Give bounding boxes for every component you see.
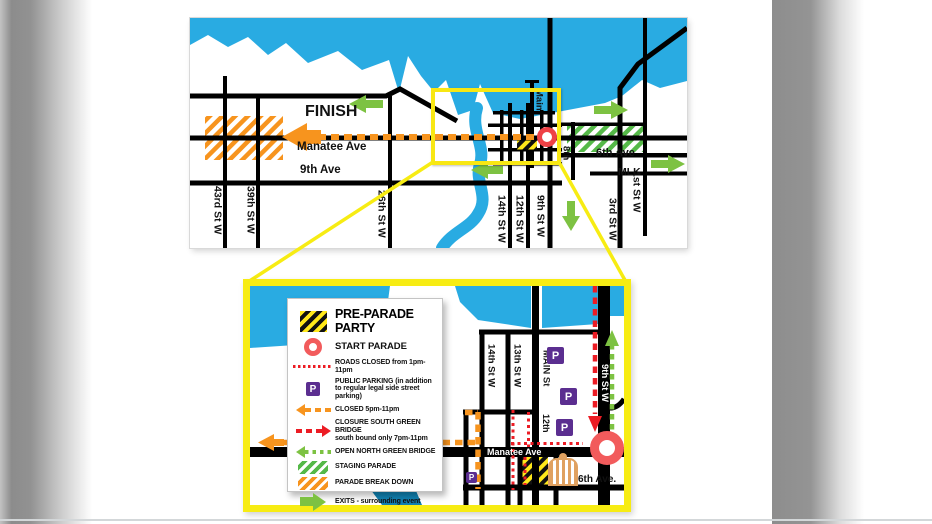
legend-title: PRE-PARADE PARTY: [335, 307, 439, 335]
legend-item-open-bridge: OPEN NORTH GREEN BRIDGE: [291, 446, 439, 458]
street-8th-label: 8th: [561, 146, 571, 160]
street-9th-label: 9th St W: [535, 195, 546, 237]
bottom-divider-line: [0, 519, 932, 521]
overview-map: FINISH Manatee Ave 9th Ave 6th Ave MLK 4…: [190, 18, 687, 248]
parking-marker: P: [547, 347, 564, 364]
street-12th-label: 12th: [541, 414, 550, 433]
manatee-ave-label: Manatee Ave: [297, 142, 366, 154]
start-parade-icon: [304, 338, 322, 356]
right-gradient-bar: [772, 0, 864, 524]
legend-item-staging: STAGING PARADE: [291, 461, 439, 474]
legend-item-breakdown: PARADE BREAK DOWN: [291, 477, 439, 490]
street-13th-label: 13th St W: [512, 344, 522, 387]
detail-map: 14th St W 13th St W MAIN St 12th 9th St …: [243, 279, 631, 512]
closed-route-icon: [296, 404, 331, 416]
sixth-ave-label: 6th Ave.: [578, 475, 616, 485]
parade-breakdown-swatch: [298, 477, 328, 490]
exits-icon: [300, 493, 326, 511]
legend-item-exits: EXITS - surrounding event: [291, 493, 439, 511]
screenshot-root: FINISH Manatee Ave 9th Ave 6th Ave MLK 4…: [0, 0, 932, 524]
legend-item-closure-bridge: CLOSURE SOUTH GREEN BRIDGE south bound o…: [291, 419, 439, 442]
street-39th-label: 39th St W: [245, 186, 256, 234]
parking-icon: P: [306, 382, 320, 396]
roads-closed-icon: [293, 365, 333, 368]
street-3rd-label: 3rd St W: [607, 198, 618, 241]
street-9th-label: 9th St W: [600, 364, 610, 402]
finish-label: FINISH: [305, 104, 357, 120]
sixth-ave-label: 6th Ave: [596, 148, 635, 159]
street-14th-label: 14th St W: [486, 344, 496, 387]
north-bridge-open-icon: [296, 446, 331, 458]
legend-item-roads-closed: ROADS CLOSED from 1pm-11pm: [291, 359, 439, 375]
parking-marker: P: [556, 419, 573, 436]
legend-item-start: START PARADE: [291, 338, 439, 356]
legend-item-public-parking: P PUBLIC PARKING (in addition to regular…: [291, 378, 439, 401]
left-gradient-bar: [0, 0, 96, 524]
building-icon: [548, 458, 578, 486]
staging-parade-swatch: [298, 461, 328, 474]
legend-item-closed: CLOSED 5pm-11pm: [291, 404, 439, 416]
start-parade-marker: [595, 436, 620, 461]
street-1st-label: 1st St W: [631, 171, 642, 212]
legend-title-row: PRE-PARADE PARTY: [291, 307, 439, 335]
south-bridge-closure-icon: [296, 425, 331, 437]
ninth-ave-label: 9th Ave: [300, 165, 341, 177]
parking-marker: P: [466, 472, 477, 483]
street-12th-label: 12th St W: [514, 195, 525, 243]
manatee-ave-label: Manatee Ave: [487, 448, 541, 457]
detail-highlight-box: [431, 88, 561, 165]
street-26th-label: 26th St W: [376, 190, 387, 238]
parking-marker: P: [560, 388, 577, 405]
street-43rd-label: 43rd St W: [212, 186, 223, 234]
pre-parade-party-swatch: [300, 311, 327, 332]
map-legend: PRE-PARADE PARTY START PARADE ROADS CLOS…: [287, 298, 443, 492]
street-14th-label: 14th St W: [496, 195, 507, 243]
